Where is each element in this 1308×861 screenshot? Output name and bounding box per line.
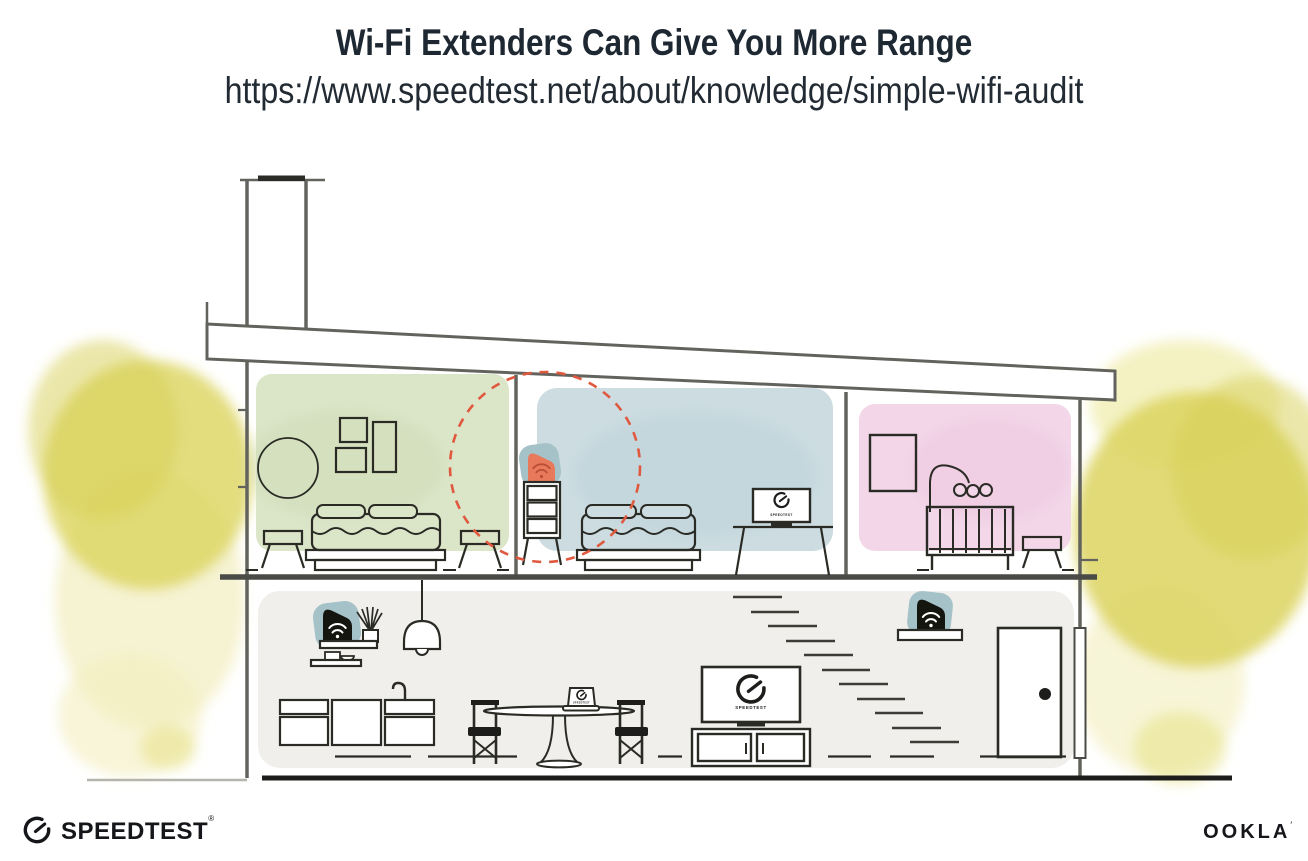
infographic-canvas: Wi-Fi Extenders Can Give You More Range … xyxy=(0,0,1308,861)
dresser xyxy=(523,482,561,565)
speedtest-wordmark: SPEEDTEST xyxy=(61,818,208,845)
speedtest-gauge-icon xyxy=(20,813,54,847)
wall-shelf-router xyxy=(320,641,377,648)
tv-lower: SPEEDTEST xyxy=(702,667,800,727)
foliage-left xyxy=(28,340,253,777)
wall-shelf-extender xyxy=(898,630,962,640)
speedtest-reg-mark: ® xyxy=(208,814,214,823)
tv-upper-label: SPEEDTEST xyxy=(770,513,793,517)
ookla-wordmark: OOKLA xyxy=(1203,821,1290,843)
laptop-label: SPEEDTEST xyxy=(573,702,590,705)
tv-upper: SPEEDTEST xyxy=(753,489,810,526)
tv-lower-label: SPEEDTEST xyxy=(735,705,767,710)
ookla-tm-mark: ′ xyxy=(1290,820,1292,830)
media-console xyxy=(692,729,810,766)
door-knob xyxy=(1039,688,1051,700)
house-illustration: SPEEDTEST xyxy=(0,0,1308,861)
foliage-right xyxy=(1074,340,1308,784)
door-sidelight xyxy=(1075,628,1086,758)
entry-door xyxy=(998,628,1061,757)
speedtest-logo: SPEEDTEST® xyxy=(20,813,214,847)
nursery-stool xyxy=(1023,537,1061,568)
chimney xyxy=(240,176,325,331)
ookla-logo: OOKLA′ xyxy=(1203,820,1292,844)
